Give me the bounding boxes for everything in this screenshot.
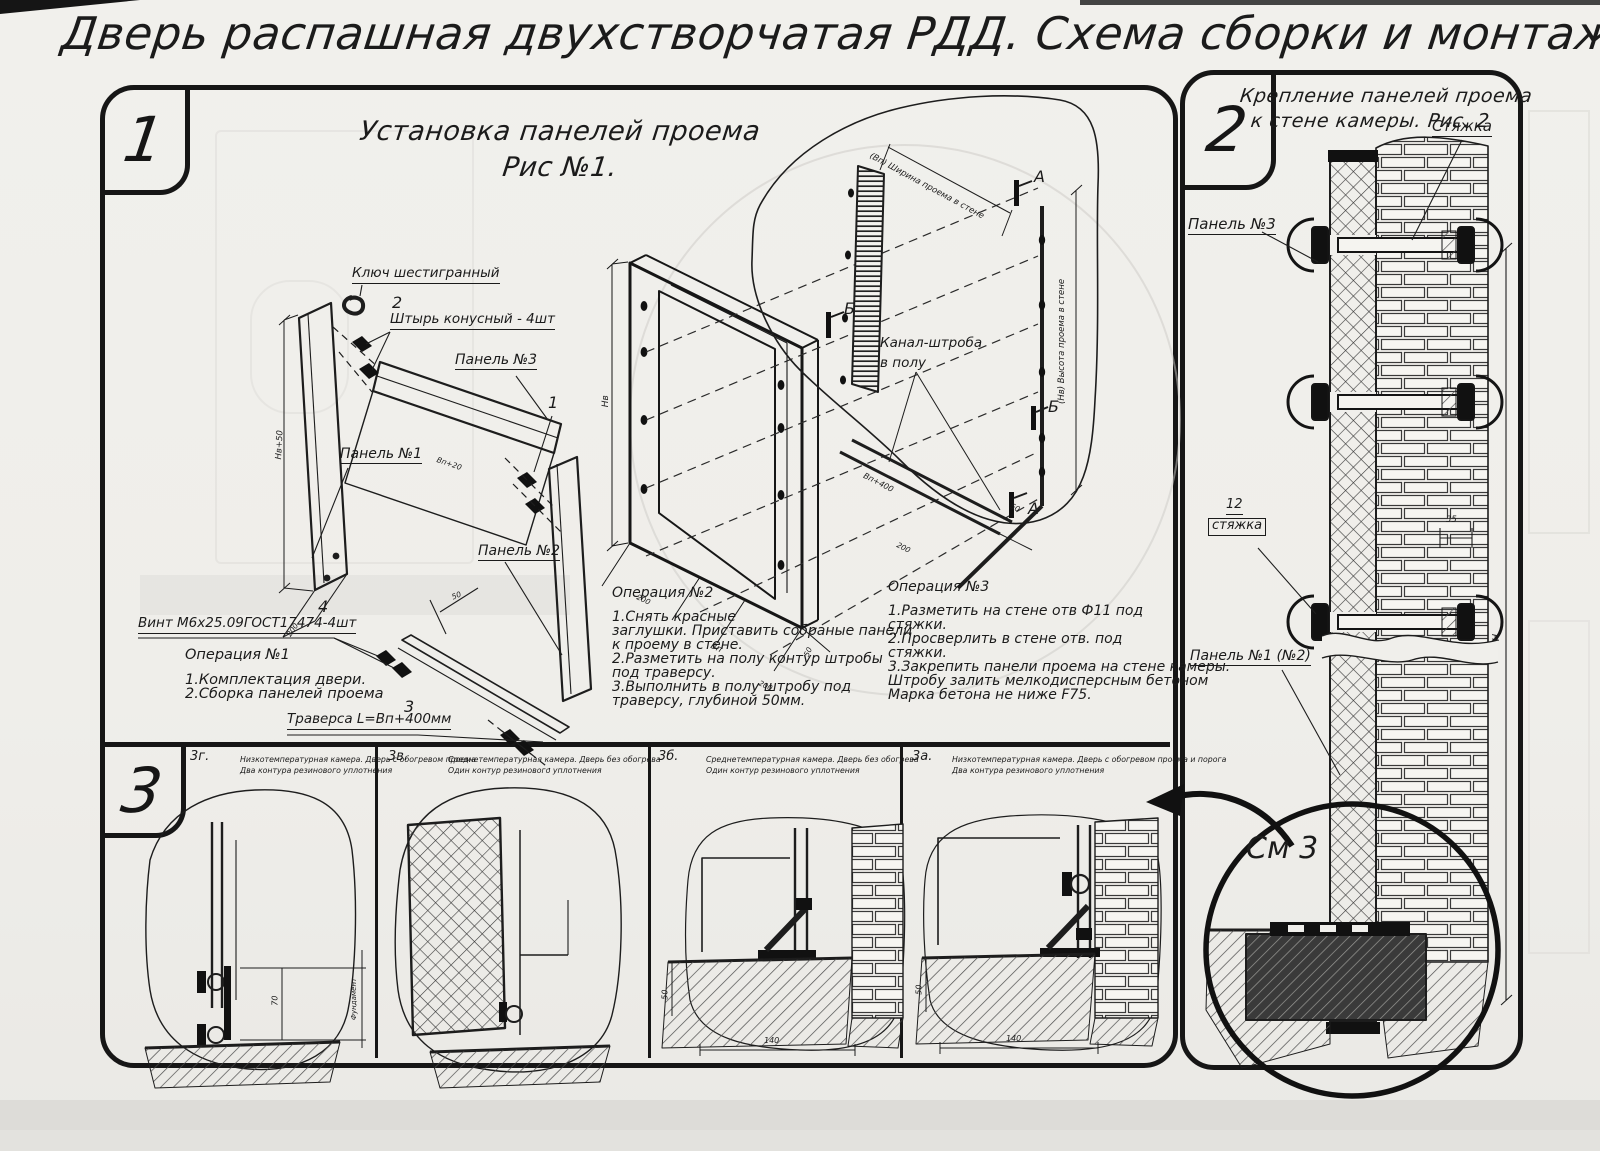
operation-2-line: заглушки. Приставить собраные панели (612, 624, 912, 638)
view-id-3g: 3г. (190, 750, 209, 765)
label-panel-2: Панель №2 (478, 543, 560, 561)
operation-1-block: Операция №1 1.Комплектация двери. 2.Сбор… (185, 648, 384, 702)
dim-50-3b: 50 (661, 990, 670, 1000)
view-caption-3v-2: Один контур резинового уплотнения (448, 767, 602, 776)
label-channel-line2: в полу (880, 356, 926, 372)
label-panel-1-2: Панель №1 (№2) (1190, 648, 1311, 666)
drawing-linework (0, 0, 1600, 1151)
operation-1-line: 2.Сборка панелей проема (185, 687, 384, 702)
marker-b-wall: Б (1048, 398, 1059, 416)
label-channel-line1: Канал-штроба (880, 336, 982, 352)
fig2-title-line1: Крепление панелей проема (1239, 86, 1502, 108)
operation-3-title: Операция №3 (888, 580, 1230, 594)
label-traverse: Траверса L=Вп+400мм (287, 712, 451, 730)
marker-a-bottom: А (1028, 500, 1039, 518)
dim-h: Н (1492, 634, 1503, 641)
label-pin-number: 2 (392, 294, 402, 312)
label-tie-boxed: стяжка (1208, 518, 1266, 536)
operation-2-line: 1.Снять красные (612, 610, 912, 624)
view-caption-3g-2: Два контура резинового уплотнения (240, 767, 392, 776)
dim-50-3a: 50 (915, 985, 924, 995)
label-item-4: 4 (318, 598, 328, 616)
label-conical-pin: Штырь конусный - 4шт (390, 312, 555, 330)
view-id-3a: 3а. (912, 750, 932, 765)
dim-foundation: Фундамент (350, 978, 358, 1020)
view-caption-3a-1: Низкотемпературная камера. Дверь с обогр… (952, 756, 1226, 765)
page-title: Дверь распашная двухстворчатая РДД. Схем… (59, 8, 1600, 60)
label-item-12: 12 (1226, 498, 1243, 515)
operation-1-title: Операция №1 (185, 648, 384, 663)
label-see-detail-3: См 3 (1246, 832, 1318, 867)
operation-3-line: Штробу залить мелкодисперсным бетоном (888, 674, 1230, 688)
operation-2-block: Операция №2 1.Снять красные заглушки. Пр… (612, 586, 912, 708)
view-caption-3g-1: Низкотемпературная камера. Дверь с обогр… (240, 756, 476, 765)
dim-140-3b: 140 (764, 1036, 779, 1045)
dim-nv50: Нв+50 (275, 430, 286, 460)
label-panel-1: Панель №1 (340, 446, 422, 464)
view-id-3b: 3б. (658, 750, 678, 765)
operation-3-line: 3.Закрепить панели проема на стене камер… (888, 660, 1230, 674)
dim-35: 35 (1446, 516, 1457, 526)
operation-3-line: 1.Разметить на стене отв Ф11 под (888, 604, 1230, 618)
view-id-3v: 3в. (388, 750, 408, 765)
marker-b-frame: Б (844, 300, 855, 318)
fig1-title-line1: Установка панелей проема (348, 116, 772, 147)
operation-2-line: траверсу, глубиной 50мм. (612, 694, 912, 708)
view-caption-3b-1: Среднетемпературная камера. Дверь без об… (706, 756, 919, 765)
label-screw: Винт М6х25.09ГОСТ17474-4шт (138, 616, 356, 634)
dim-wall-height: (Нв) Высота проема в стене (1058, 279, 1068, 404)
dim-70: 70 (271, 996, 280, 1006)
label-hex-key: Ключ шестигранный (352, 266, 500, 284)
view-caption-3a-2: Два контура резинового уплотнения (952, 767, 1104, 776)
view-caption-3v-1: Среднетемпературная камера. Дверь без об… (448, 756, 661, 765)
dim-140-3a: 140 (1006, 1034, 1021, 1043)
label-item-1: 1 (548, 394, 558, 412)
operation-2-line: к проему в стене. (612, 638, 912, 652)
operation-2-title: Операция №2 (612, 586, 912, 600)
operation-3-line: стяжки. (888, 618, 1230, 632)
label-panel-3-fig2: Панель №3 (1188, 216, 1276, 235)
view-caption-3b-2: Один контур резинового уплотнения (706, 767, 860, 776)
marker-a-top: А (1034, 168, 1045, 186)
operation-3-block: Операция №3 1.Разметить на стене отв Ф11… (888, 580, 1230, 702)
operation-2-line: под траверсу. (612, 666, 912, 680)
operation-2-line: 2.Разметить на полу контур штробы (612, 652, 912, 666)
operation-3-line: 2.Просверлить в стене отв. под (888, 632, 1230, 646)
hex-key-icon (344, 297, 363, 314)
fig1-title-line2: Рис №1. (348, 152, 772, 183)
label-panel-3: Панель №3 (455, 352, 537, 370)
label-tie-rod: Стяжка (1432, 118, 1492, 137)
operation-3-line: стяжки. (888, 646, 1230, 660)
operation-3-line: Марка бетона не ниже F75. (888, 688, 1230, 702)
operation-2-line: 3.Выполнить в полу штробу под (612, 680, 912, 694)
dim-nv-frame: Нв (601, 395, 611, 407)
operation-1-line: 1.Комплектация двери. (185, 673, 384, 688)
